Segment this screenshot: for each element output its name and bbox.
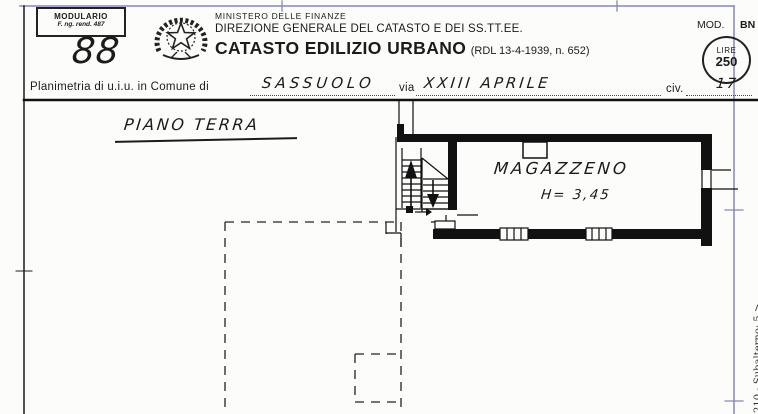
dashed-boundary-lines [225, 222, 401, 414]
room-height-label: H= 3,45 [540, 187, 612, 203]
via-dotted-line [416, 94, 661, 96]
document-title: CATASTO EDILIZIO URBANO [215, 38, 466, 58]
civ-label: civ. [666, 83, 684, 95]
via-label: via [399, 82, 415, 94]
italian-republic-emblem-icon [149, 11, 213, 65]
comune-label: Planimetria di u.i.u. in Comune di [30, 81, 209, 93]
document-law-reference: (RDL 13-4-1939, n. 652) [471, 45, 590, 57]
mod-value: BN [740, 19, 755, 31]
civ-value: 17 [715, 76, 739, 92]
cadastral-document-page: MODULARIO F. ng. rend. 487 88 MINISTERO … [0, 0, 758, 414]
civ-dotted-line [686, 94, 752, 96]
modulario-label: MODULARIO [38, 12, 124, 21]
modulario-sublabel: F. ng. rend. 487 [38, 21, 124, 28]
document-title-row: CATASTO EDILIZIO URBANO (RDL 13-4-1939, … [215, 38, 590, 59]
comune-value: SASSUOLO [261, 74, 376, 92]
stamp-value: 250 [704, 55, 749, 68]
margin-subalterno-note: 210 - Subalterno: 5 > [753, 304, 758, 413]
ministry-line: MINISTERO DELLE FINANZE [215, 11, 346, 21]
floor-label: PIANO TERRA [123, 115, 261, 134]
via-value: XXIII APRILE [423, 74, 551, 92]
room-label: MAGAZZENO [493, 159, 630, 178]
directorate-line: DIREZIONE GENERALE DEL CATASTO E DEI SS.… [215, 23, 523, 35]
staircase-drawing [386, 101, 478, 247]
comune-dotted-line [250, 94, 395, 96]
form-frame-lines [16, 1, 758, 414]
mod-label: MOD. [697, 19, 724, 31]
protocol-number: 88 [70, 34, 122, 70]
